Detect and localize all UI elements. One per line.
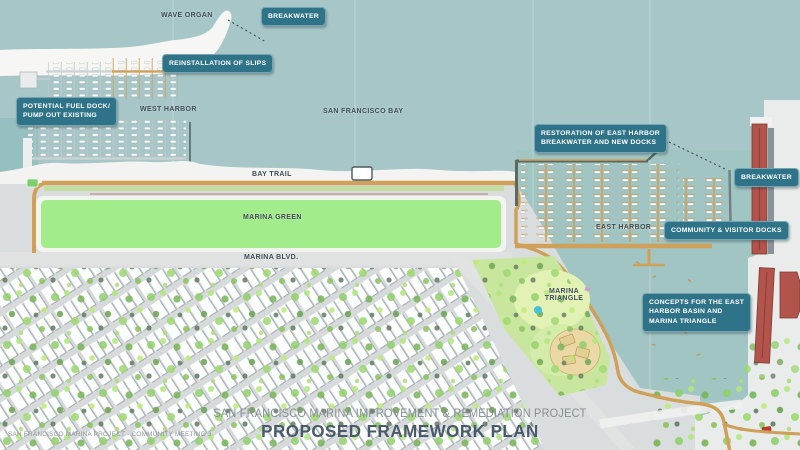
label-east-harbor: EAST HARBOR [596,224,651,231]
label-san-francisco-bay: SAN FRANCISCO BAY [323,108,403,115]
plan-title: PROPOSED FRAMEWORK PLAN [261,421,539,442]
label-bay-trail: BAY TRAIL [252,171,292,178]
callout-reinstallation-of-slips: REINSTALLATION OF SLIPS [162,54,273,73]
callout-breakwater-west: BREAKWATER [261,7,326,26]
callout-concepts-east-harbor: CONCEPTS FOR THE EAST HARBOR BASIN AND M… [642,293,751,332]
label-marina-triangle: MARINA TRIANGLE [536,288,592,302]
label-marina-green: MARINA GREEN [243,214,302,221]
label-west-harbor: WEST HARBOR [140,106,197,113]
label-wave-organ: WAVE ORGAN [161,12,213,19]
callout-potential-fuel-dock: POTENTIAL FUEL DOCK/ PUMP OUT EXISTING [16,97,117,126]
project-title: SAN FRANCISCO MARINA IMPROVEMENT & REMED… [213,408,586,420]
callout-restoration-east-harbor: RESTORATION OF EAST HARBOR BREAKWATER AN… [534,124,667,153]
footnote: SAN FRANCISCO MARINA PROJECT - COMMUNITY… [8,431,212,438]
callout-breakwater-east: BREAKWATER [734,168,799,187]
label-marina-blvd: MARINA BLVD. [244,254,298,261]
callout-community-visitor-docks: COMMUNITY & VISITOR DOCKS [664,221,789,240]
framework-plan-poster: WAVE ORGAN WEST HARBOR SAN FRANCISCO BAY… [0,0,800,450]
